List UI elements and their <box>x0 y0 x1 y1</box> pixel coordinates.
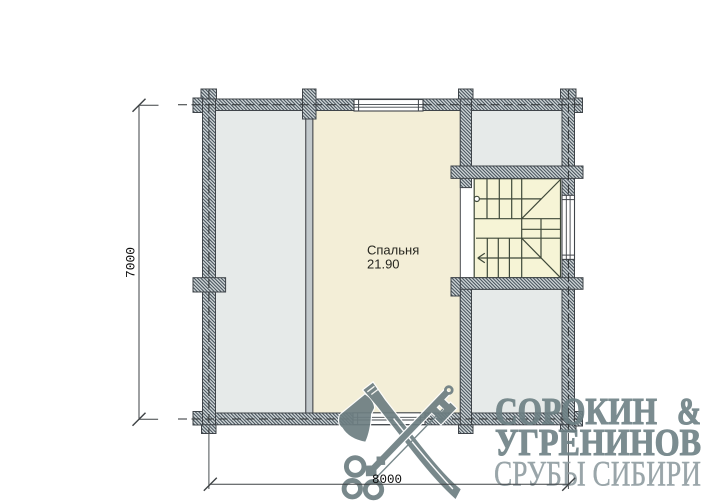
svg-text:СРУБЫ СИБИРИ: СРУБЫ СИБИРИ <box>494 454 701 494</box>
svg-text:21.90: 21.90 <box>367 256 400 271</box>
svg-text:8000: 8000 <box>372 472 402 487</box>
svg-text:7000: 7000 <box>124 247 139 278</box>
